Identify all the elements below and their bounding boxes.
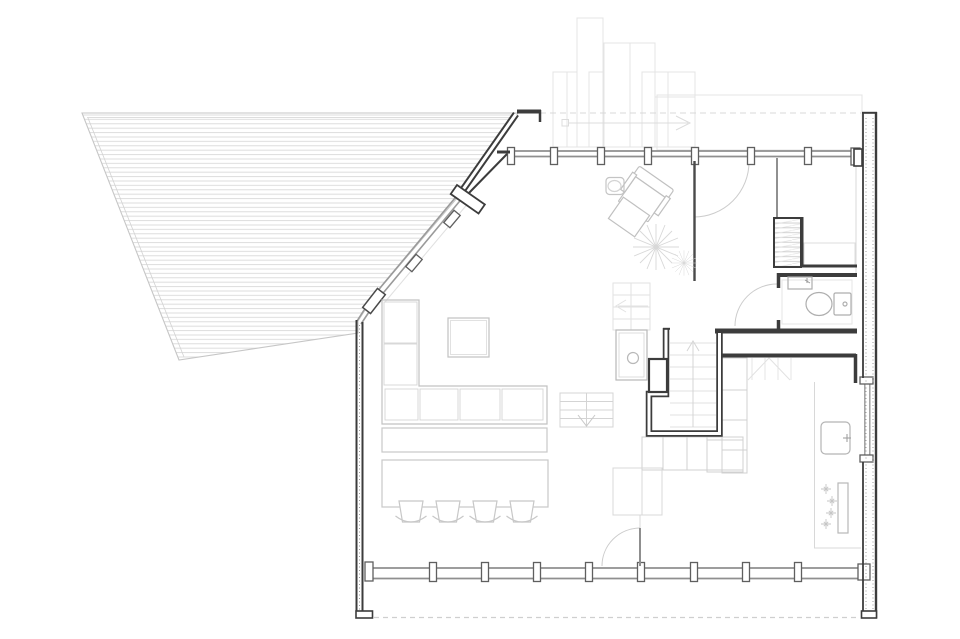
pantry-counter — [613, 468, 662, 528]
stair-overlay-slot — [748, 358, 791, 380]
spotlight — [821, 519, 831, 529]
door-arc-bathroom — [735, 284, 777, 326]
overlay-volume — [589, 72, 604, 147]
overlay-volume — [553, 72, 567, 147]
plants — [633, 224, 697, 276]
stair-main-treads — [670, 341, 716, 427]
kitchen-sink — [616, 330, 647, 380]
flue-box — [649, 359, 667, 392]
vanity-basin — [821, 422, 851, 454]
stair-enclosure — [649, 328, 720, 434]
toilet — [806, 293, 851, 316]
wall-east — [854, 112, 877, 618]
spotlight — [821, 484, 831, 494]
wall-closet-L — [802, 217, 857, 266]
spotlight — [827, 496, 837, 506]
deck-terrace — [82, 113, 518, 360]
bar-stools — [396, 501, 538, 522]
coffee-table — [448, 318, 489, 357]
stair-overlay-upper — [613, 283, 650, 330]
floor-plan-drawing — [0, 0, 960, 639]
stair-small-flight — [560, 393, 613, 427]
bar-stool — [470, 501, 501, 522]
upper-floor-overlay — [540, 18, 862, 150]
radiator — [838, 483, 848, 533]
spotlight — [826, 508, 836, 518]
plant — [671, 250, 696, 275]
overlay-volume — [604, 43, 630, 147]
bar-stool — [396, 501, 427, 522]
deck-outline — [82, 113, 518, 360]
stair-direction-arrow — [562, 116, 690, 130]
hall-shelf — [804, 243, 855, 267]
overlay-volume — [577, 18, 603, 147]
bar-stool — [507, 501, 538, 522]
floor-plan-canvas — [0, 0, 960, 639]
wardrobe — [774, 218, 801, 267]
door-arc-south — [602, 528, 640, 566]
bathroom-sink — [788, 277, 812, 289]
spotlight-symbols — [821, 484, 837, 529]
sofa — [382, 300, 547, 424]
window-east — [865, 383, 870, 457]
window-band-south — [368, 568, 862, 579]
bar-stool — [433, 501, 464, 522]
kitchen-island — [382, 428, 548, 507]
door-arc-hall — [694, 162, 749, 217]
overlay-volume — [668, 72, 695, 147]
side-table — [606, 178, 624, 195]
overlay-volume — [567, 72, 577, 147]
